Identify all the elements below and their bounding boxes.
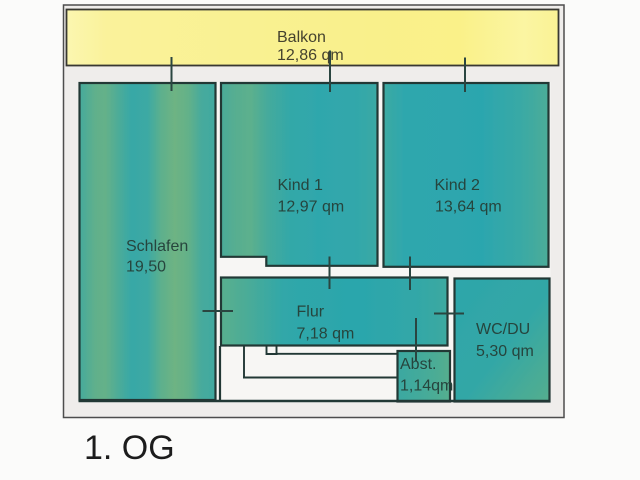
svg-text:Flur: Flur [297, 304, 325, 321]
svg-text:13,64 qm: 13,64 qm [435, 199, 502, 216]
svg-text:12,97 qm: 12,97 qm [278, 199, 345, 216]
svg-text:WC/DU: WC/DU [476, 321, 530, 338]
svg-text:Kind 1: Kind 1 [278, 177, 323, 194]
svg-text:1,14qm: 1,14qm [400, 378, 453, 395]
svg-text:12,86 qm: 12,86 qm [277, 47, 344, 64]
svg-text:1. OG: 1. OG [84, 429, 175, 467]
svg-text:5,30 qm: 5,30 qm [476, 343, 534, 360]
svg-text:7,18 qm: 7,18 qm [297, 326, 355, 343]
svg-text:Schlafen: Schlafen [126, 238, 188, 255]
svg-text:19,50: 19,50 [126, 259, 166, 276]
svg-text:Kind 2: Kind 2 [435, 177, 480, 194]
svg-text:Balkon: Balkon [277, 29, 326, 46]
svg-text:Abst.: Abst. [400, 356, 436, 373]
